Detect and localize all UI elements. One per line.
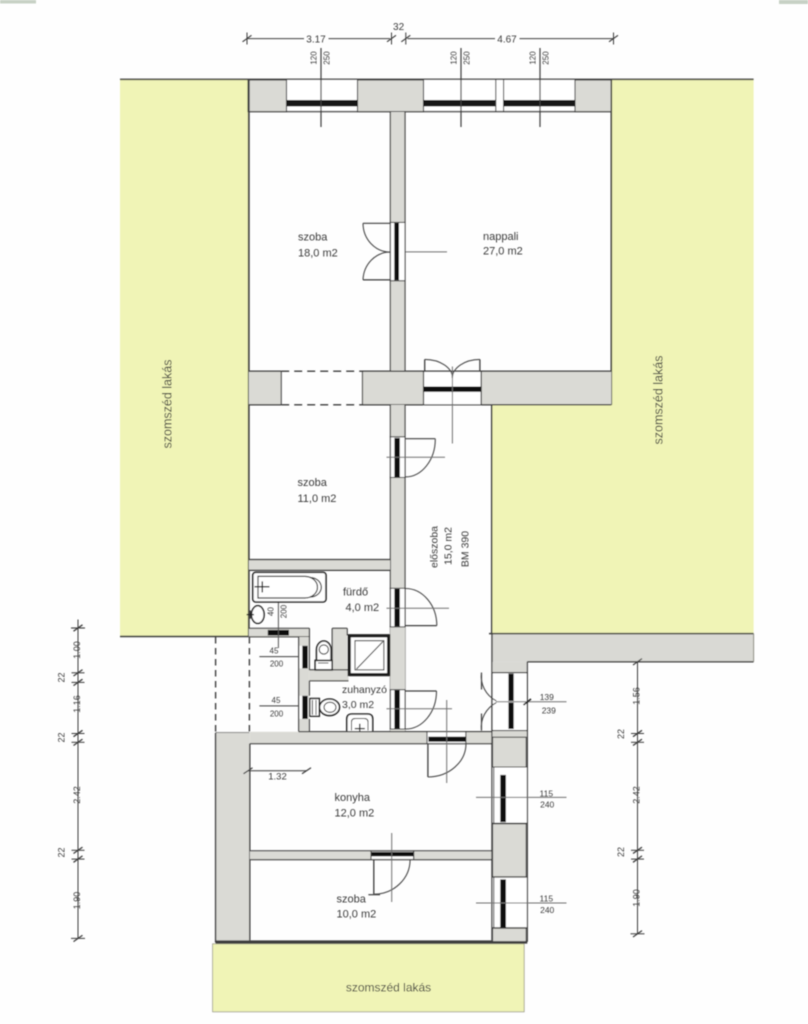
svg-text:4,0 m2: 4,0 m2	[346, 602, 380, 614]
svg-text:22: 22	[57, 672, 67, 682]
svg-text:szoba: szoba	[298, 477, 328, 489]
svg-text:239: 239	[542, 705, 556, 715]
svg-text:250: 250	[463, 51, 472, 65]
svg-text:120: 120	[310, 51, 319, 65]
svg-text:szomszéd lakás: szomszéd lakás	[161, 360, 175, 449]
svg-text:2.42: 2.42	[632, 786, 642, 804]
svg-text:zuhanyzó: zuhanyzó	[342, 684, 387, 696]
svg-text:szomszéd lakás: szomszéd lakás	[652, 356, 666, 445]
svg-text:22: 22	[616, 847, 626, 857]
svg-text:240: 240	[540, 800, 554, 810]
svg-text:11,0 m2: 11,0 m2	[298, 493, 337, 505]
svg-text:45: 45	[272, 696, 281, 705]
svg-text:3.17: 3.17	[306, 34, 326, 45]
svg-text:200: 200	[279, 604, 288, 618]
svg-text:115: 115	[540, 788, 554, 798]
svg-text:250: 250	[542, 51, 551, 65]
svg-text:1.90: 1.90	[632, 889, 642, 907]
svg-text:22: 22	[57, 732, 67, 742]
svg-text:konyha: konyha	[335, 792, 371, 804]
svg-text:240: 240	[540, 905, 554, 915]
svg-text:1.32: 1.32	[268, 772, 287, 783]
svg-text:1.00: 1.00	[72, 641, 82, 659]
svg-text:27,0 m2: 27,0 m2	[483, 246, 523, 258]
svg-text:139: 139	[540, 692, 554, 702]
svg-text:22: 22	[616, 729, 626, 739]
svg-text:BM 390: BM 390	[460, 531, 472, 567]
svg-text:22: 22	[57, 847, 67, 857]
svg-text:2.42: 2.42	[72, 786, 82, 804]
svg-text:előszoba: előszoba	[428, 526, 440, 568]
svg-text:18,0 m2: 18,0 m2	[298, 248, 338, 260]
svg-text:115: 115	[540, 894, 554, 904]
svg-text:3,0 m2: 3,0 m2	[342, 699, 374, 711]
svg-text:12,0 m2: 12,0 m2	[335, 808, 375, 820]
svg-text:32: 32	[393, 22, 405, 33]
svg-text:szoba: szoba	[298, 232, 328, 244]
svg-text:1.90: 1.90	[72, 892, 82, 910]
svg-text:10,0 m2: 10,0 m2	[337, 909, 377, 921]
svg-text:4.67: 4.67	[497, 34, 517, 45]
svg-text:250: 250	[323, 51, 332, 65]
svg-text:1.56: 1.56	[632, 687, 642, 705]
svg-text:szomszéd lakás: szomszéd lakás	[346, 981, 431, 995]
svg-text:fürdő: fürdő	[343, 587, 368, 599]
svg-text:szoba: szoba	[337, 894, 367, 906]
svg-text:120: 120	[529, 51, 538, 65]
svg-text:120: 120	[450, 51, 459, 65]
svg-text:200: 200	[270, 659, 284, 668]
svg-text:200: 200	[270, 710, 284, 719]
svg-text:nappali: nappali	[483, 231, 518, 243]
svg-text:15,0 m2: 15,0 m2	[443, 527, 455, 565]
svg-text:1.16: 1.16	[72, 695, 82, 713]
svg-text:40: 40	[267, 607, 276, 616]
svg-text:45: 45	[270, 647, 279, 656]
